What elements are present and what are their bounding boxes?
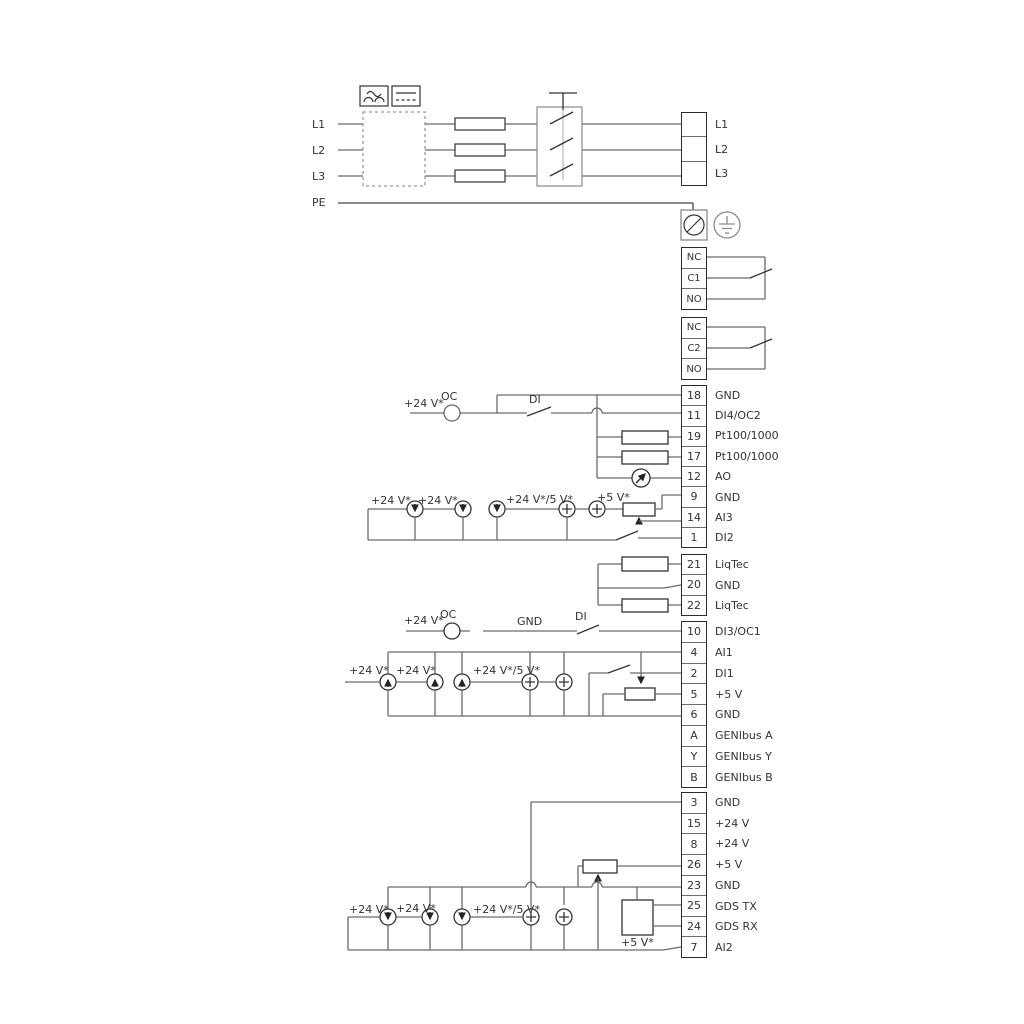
wire-label-24v-5v: +24 V*/5 V* <box>473 903 540 916</box>
terminal-label: GENIbus B <box>715 767 773 788</box>
pt100-resistor-icon <box>622 431 668 444</box>
fuse-l3 <box>455 170 505 182</box>
terminal-label: L3 <box>715 161 728 186</box>
ao-meter-icon <box>632 469 650 487</box>
terminal-block-2: 104256AYB DI3/OC1AI1DI1+5 VGNDGENIbus AG… <box>681 621 773 788</box>
wire-label-24v-5v: +24 V*/5 V* <box>506 493 573 506</box>
mains-label: L2 <box>312 137 338 163</box>
terminal-label: LiqTec <box>715 595 749 616</box>
di3-wiring <box>406 623 681 639</box>
fuse-l1 <box>455 118 505 130</box>
mains-label: L3 <box>312 164 338 190</box>
relay2-block: NCC2NO <box>681 317 707 380</box>
relay2-contact <box>707 327 772 369</box>
terminal-cell: 18 <box>682 386 706 406</box>
current-source-icon <box>454 909 470 925</box>
gds-sensor-box <box>622 900 653 935</box>
terminal-cell: 4 <box>682 643 706 664</box>
terminal-label: DI1 <box>715 663 773 684</box>
terminal-label: GENIbus A <box>715 725 773 746</box>
terminal-labels: DI3/OC1AI1DI1+5 VGNDGENIbus AGENIbus YGE… <box>715 621 773 788</box>
wiring-diagram: L1L2L3PE L1L2L3 NCC1NO NCC2NO 1811191712… <box>0 0 1024 1024</box>
terminal-cell: 7 <box>682 937 706 957</box>
terminal-cell <box>682 137 706 161</box>
terminal-labels: GND+24 V+24 V+5 VGNDGDS TXGDS RXAI2 <box>715 792 758 958</box>
open-collector-icon <box>444 623 460 639</box>
terminal-label: GND <box>715 792 758 813</box>
terminal-block-3: 3158262325247 GND+24 V+24 V+5 VGNDGDS TX… <box>681 792 758 958</box>
fuse-l2 <box>455 144 505 156</box>
terminal-cell: 21 <box>682 555 706 575</box>
earth-icon <box>714 212 740 238</box>
terminal-cell: C2 <box>682 339 706 360</box>
terminal-cell: 2 <box>682 664 706 685</box>
terminal-label: L1 <box>715 112 728 137</box>
terminal-label: GND <box>715 385 779 405</box>
terminal-cell: 11 <box>682 406 706 426</box>
liqtec-sensor-icon <box>622 599 668 612</box>
wiring-layer <box>0 0 1024 1024</box>
potentiometer-icon <box>625 688 655 700</box>
liqtec-sensor-icon <box>622 557 668 571</box>
open-collector-icon <box>444 405 460 421</box>
terminal-cell <box>682 162 706 185</box>
terminal-label: Pt100/1000 <box>715 426 779 446</box>
terminal-label: L2 <box>715 137 728 162</box>
terminal-label: AO <box>715 467 779 487</box>
terminal-cell: 15 <box>682 814 706 835</box>
wire-label-5v: +5 V* <box>597 491 630 504</box>
wire-label-24v: +24 V* <box>349 903 389 916</box>
terminal-block-liqtec: 212022 LiqTecGNDLiqTec <box>681 554 749 616</box>
terminal-label: GND <box>715 875 758 896</box>
terminal-cell: 20 <box>682 575 706 595</box>
terminal-cell: Y <box>682 747 706 768</box>
terminal-cell: 25 <box>682 896 706 917</box>
terminal-label: +5 V <box>715 684 773 705</box>
terminal-labels: LiqTecGNDLiqTec <box>715 554 749 616</box>
terminal-cell: B <box>682 767 706 787</box>
terminal-cell: A <box>682 726 706 747</box>
terminal-cells: 212022 <box>681 554 707 616</box>
terminal-cell: 10 <box>682 622 706 643</box>
terminal-cell: 8 <box>682 834 706 855</box>
terminal-cell: 17 <box>682 447 706 467</box>
terminal-cell: 19 <box>682 427 706 447</box>
mains-section <box>338 112 693 210</box>
terminal-cell: 1 <box>682 528 706 547</box>
terminal-cell: 22 <box>682 596 706 615</box>
terminal-label: GND <box>715 705 773 726</box>
analog-option-group-2 <box>345 652 681 716</box>
terminal-cell: NO <box>682 359 706 379</box>
analog-option-group-3 <box>348 802 681 950</box>
terminal-labels: GNDDI4/OC2Pt100/1000Pt100/1000AOGNDAI3DI… <box>715 385 779 548</box>
ac-icon <box>360 86 388 106</box>
disconnect-switch <box>537 93 582 186</box>
fuse-set <box>455 118 505 182</box>
terminal-label: LiqTec <box>715 554 749 575</box>
wire-label-24v: +24 V* <box>404 614 444 627</box>
current-source-icon <box>454 674 470 690</box>
wire-label-di: DI <box>529 393 541 406</box>
terminal-label: DI4/OC2 <box>715 405 779 425</box>
relay1-block: NCC1NO <box>681 247 707 310</box>
potentiometer-icon <box>583 860 617 873</box>
tb1-wiring <box>410 395 681 487</box>
terminal-label: GDS RX <box>715 917 758 938</box>
terminal-cell: 26 <box>682 855 706 876</box>
terminal-cell: 6 <box>682 705 706 726</box>
wire-label-24v: +24 V* <box>396 664 436 677</box>
terminal-label: GND <box>715 487 779 507</box>
voltage-source-icon <box>556 674 572 690</box>
terminal-label: +24 V <box>715 834 758 855</box>
wire-label-24v: +24 V* <box>349 664 389 677</box>
terminal-cells <box>681 112 707 186</box>
wire-label-oc: OC <box>440 608 456 621</box>
terminal-cell: NC <box>682 248 706 269</box>
terminal-label: Pt100/1000 <box>715 446 779 466</box>
terminal-label: AI3 <box>715 507 779 527</box>
dc-icon <box>392 86 420 106</box>
wire-label-24v: +24 V* <box>404 397 444 410</box>
terminal-block-1: 18111917129141 GNDDI4/OC2Pt100/1000Pt100… <box>681 385 779 548</box>
potentiometer-icon <box>623 503 655 516</box>
wire-label-24v: +24 V* <box>371 494 411 507</box>
terminal-cell: 24 <box>682 917 706 938</box>
terminal-cells: 104256AYB <box>681 621 707 788</box>
wire-hop <box>592 882 602 887</box>
terminal-cell: 23 <box>682 876 706 897</box>
terminal-label: DI2 <box>715 528 779 548</box>
wire-label-gnd: GND <box>517 615 542 628</box>
terminal-cells: NCC2NO <box>681 317 707 380</box>
terminal-cell: C1 <box>682 269 706 290</box>
voltage-source-icon <box>556 909 572 925</box>
terminal-label: +5 V <box>715 854 758 875</box>
mains-label: L1 <box>312 111 338 137</box>
mains-label: PE <box>312 190 338 216</box>
terminal-cells: 18111917129141 <box>681 385 707 548</box>
pe-terminal <box>681 210 707 240</box>
wire-label-24v: +24 V* <box>418 494 458 507</box>
mains-terminal-block: L1L2L3 <box>681 112 728 186</box>
wire-label-di: DI <box>575 610 587 623</box>
wire-label-24v-5v: +24 V*/5 V* <box>473 664 540 677</box>
terminal-cell: 9 <box>682 487 706 507</box>
terminal-cell: NC <box>682 318 706 339</box>
terminal-cells: 3158262325247 <box>681 792 707 958</box>
wire-label-24v: +24 V* <box>396 902 436 915</box>
terminal-label: AI1 <box>715 642 773 663</box>
terminal-cells: NCC1NO <box>681 247 707 310</box>
relay1-contact <box>707 257 772 299</box>
liqtec-wiring <box>598 557 681 612</box>
terminal-label: GDS TX <box>715 896 758 917</box>
current-source-icon <box>489 501 505 517</box>
terminal-label: +24 V <box>715 813 758 834</box>
terminal-label: GENIbus Y <box>715 746 773 767</box>
terminal-label: AI2 <box>715 937 758 958</box>
wire-label-oc: OC <box>441 390 457 403</box>
terminal-cell: NO <box>682 289 706 309</box>
terminal-cell: 3 <box>682 793 706 814</box>
terminal-cell: 14 <box>682 508 706 528</box>
terminal-label: DI3/OC1 <box>715 621 773 642</box>
pt100-resistor-icon <box>622 451 668 464</box>
terminal-cell: 5 <box>682 684 706 705</box>
terminal-labels: L1L2L3 <box>715 112 728 186</box>
terminal-cell: 12 <box>682 467 706 487</box>
mains-left-labels: L1L2L3PE <box>312 111 338 216</box>
terminal-label: GND <box>715 575 749 596</box>
wire-label-5v: +5 V* <box>621 936 654 949</box>
terminal-cell <box>682 113 706 137</box>
emc-filter-box <box>363 112 425 186</box>
